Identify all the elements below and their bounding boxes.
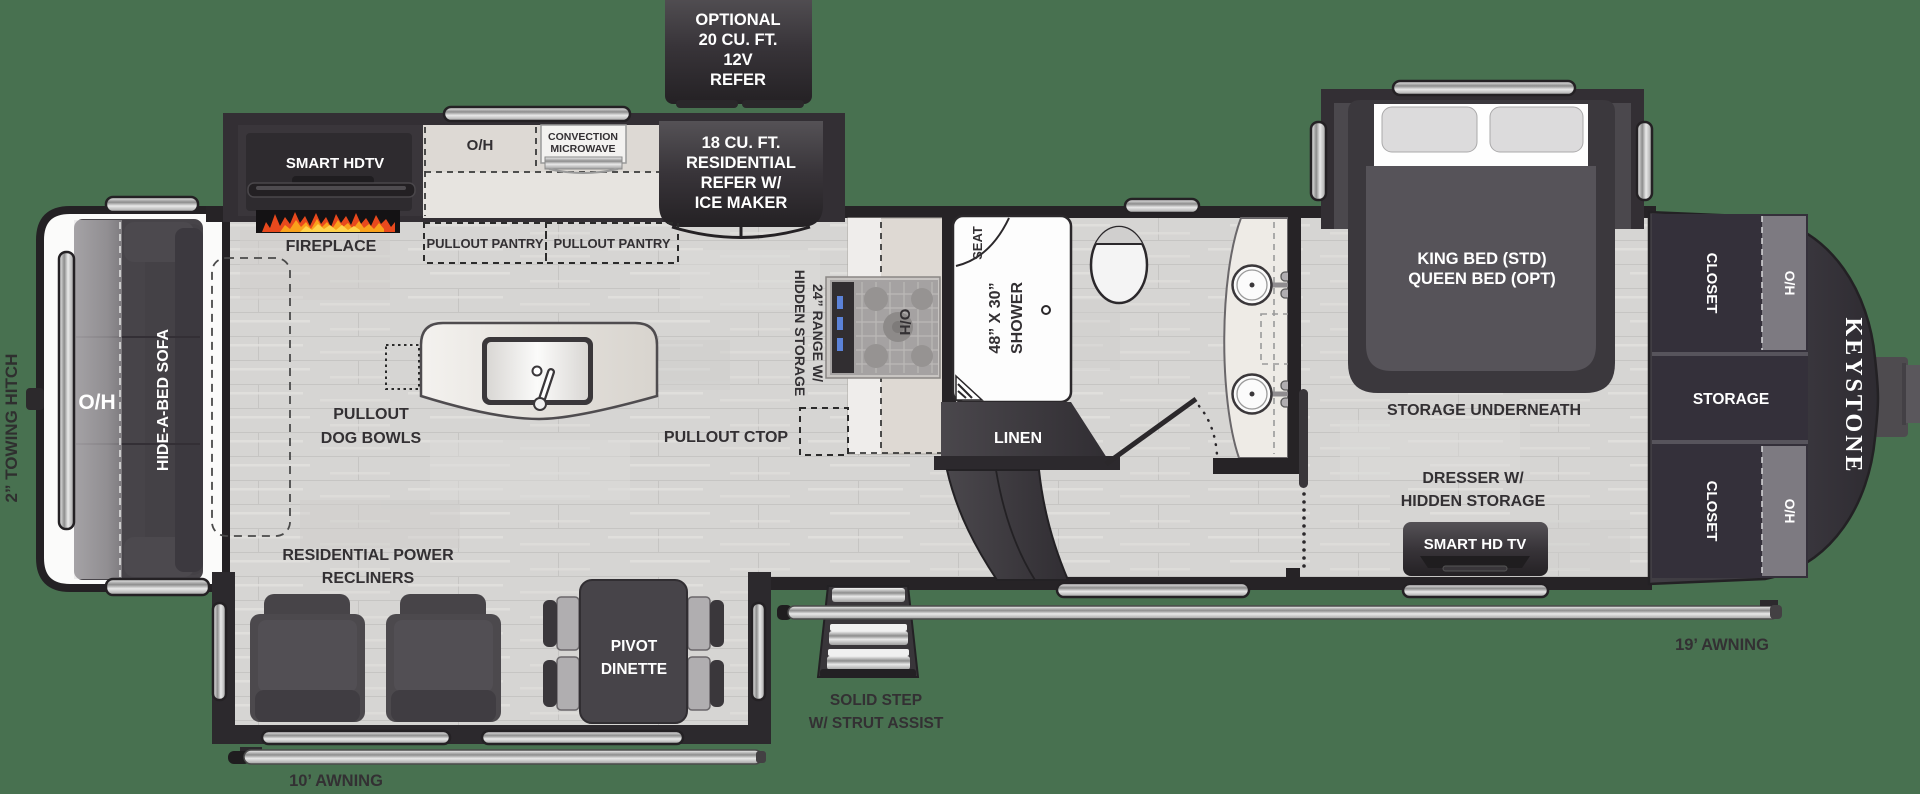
svg-text:CLOSET: CLOSET: [1703, 253, 1720, 314]
svg-text:O/H: O/H: [1782, 499, 1798, 524]
svg-text:PIVOT: PIVOT: [611, 638, 658, 655]
svg-text:20 CU. FT.: 20 CU. FT.: [699, 31, 778, 49]
svg-text:DOG BOWLS: DOG BOWLS: [321, 430, 422, 447]
svg-text:ICE MAKER: ICE MAKER: [695, 194, 788, 212]
svg-text:LINEN: LINEN: [994, 430, 1042, 447]
svg-text:CLOSET: CLOSET: [1703, 481, 1720, 542]
svg-text:O/H: O/H: [78, 391, 115, 414]
svg-text:SMART HD TV: SMART HD TV: [1424, 536, 1527, 553]
svg-text:DRESSER W/: DRESSER W/: [1422, 470, 1524, 487]
svg-text:W/ STRUT ASSIST: W/ STRUT ASSIST: [809, 715, 944, 732]
svg-text:O/H: O/H: [1782, 271, 1798, 296]
svg-text:RECLINERS: RECLINERS: [322, 570, 415, 587]
svg-text:SHOWER: SHOWER: [1009, 282, 1026, 354]
svg-text:DINETTE: DINETTE: [601, 661, 667, 678]
svg-text:O/H: O/H: [467, 137, 494, 154]
svg-text:KING BED (STD): KING BED (STD): [1417, 250, 1546, 268]
svg-text:2” TOWING HITCH: 2” TOWING HITCH: [2, 354, 21, 503]
svg-text:SEAT: SEAT: [970, 226, 985, 260]
svg-text:19’ AWNING: 19’ AWNING: [1675, 636, 1769, 654]
svg-text:STORAGE UNDERNEATH: STORAGE UNDERNEATH: [1387, 402, 1581, 419]
svg-text:KEYSTONE: KEYSTONE: [1840, 318, 1866, 475]
svg-text:48” X 30”: 48” X 30”: [987, 282, 1004, 353]
svg-text:PULLOUT PANTRY: PULLOUT PANTRY: [427, 236, 544, 251]
svg-text:RESIDENTIAL POWER: RESIDENTIAL POWER: [282, 547, 454, 564]
svg-text:STORAGE: STORAGE: [1693, 391, 1769, 408]
svg-text:O/H: O/H: [896, 309, 913, 336]
svg-text:PULLOUT PANTRY: PULLOUT PANTRY: [554, 236, 671, 251]
svg-text:SOLID STEP: SOLID STEP: [830, 692, 922, 709]
svg-text:24” RANGE W/: 24” RANGE W/: [810, 284, 826, 382]
svg-text:QUEEN BED (OPT): QUEEN BED (OPT): [1408, 270, 1556, 288]
svg-text:CONVECTION: CONVECTION: [548, 131, 618, 143]
svg-text:10’ AWNING: 10’ AWNING: [289, 772, 383, 790]
svg-text:HIDE-A-BED SOFA: HIDE-A-BED SOFA: [155, 328, 172, 471]
svg-text:HIDDEN STORAGE: HIDDEN STORAGE: [792, 270, 808, 397]
svg-text:PULLOUT: PULLOUT: [333, 406, 409, 423]
svg-text:PULLOUT CTOP: PULLOUT CTOP: [664, 429, 788, 446]
svg-text:SMART HDTV: SMART HDTV: [286, 155, 384, 172]
svg-text:12V: 12V: [723, 51, 752, 69]
svg-text:FIREPLACE: FIREPLACE: [286, 238, 377, 255]
svg-text:HIDDEN STORAGE: HIDDEN STORAGE: [1401, 493, 1546, 510]
svg-text:18 CU. FT.: 18 CU. FT.: [702, 134, 781, 152]
svg-text:RESIDENTIAL: RESIDENTIAL: [686, 154, 796, 172]
svg-text:OPTIONAL: OPTIONAL: [695, 11, 780, 29]
svg-text:REFER W/: REFER W/: [701, 174, 782, 192]
svg-text:MICROWAVE: MICROWAVE: [550, 143, 615, 155]
svg-text:REFER: REFER: [710, 71, 766, 89]
